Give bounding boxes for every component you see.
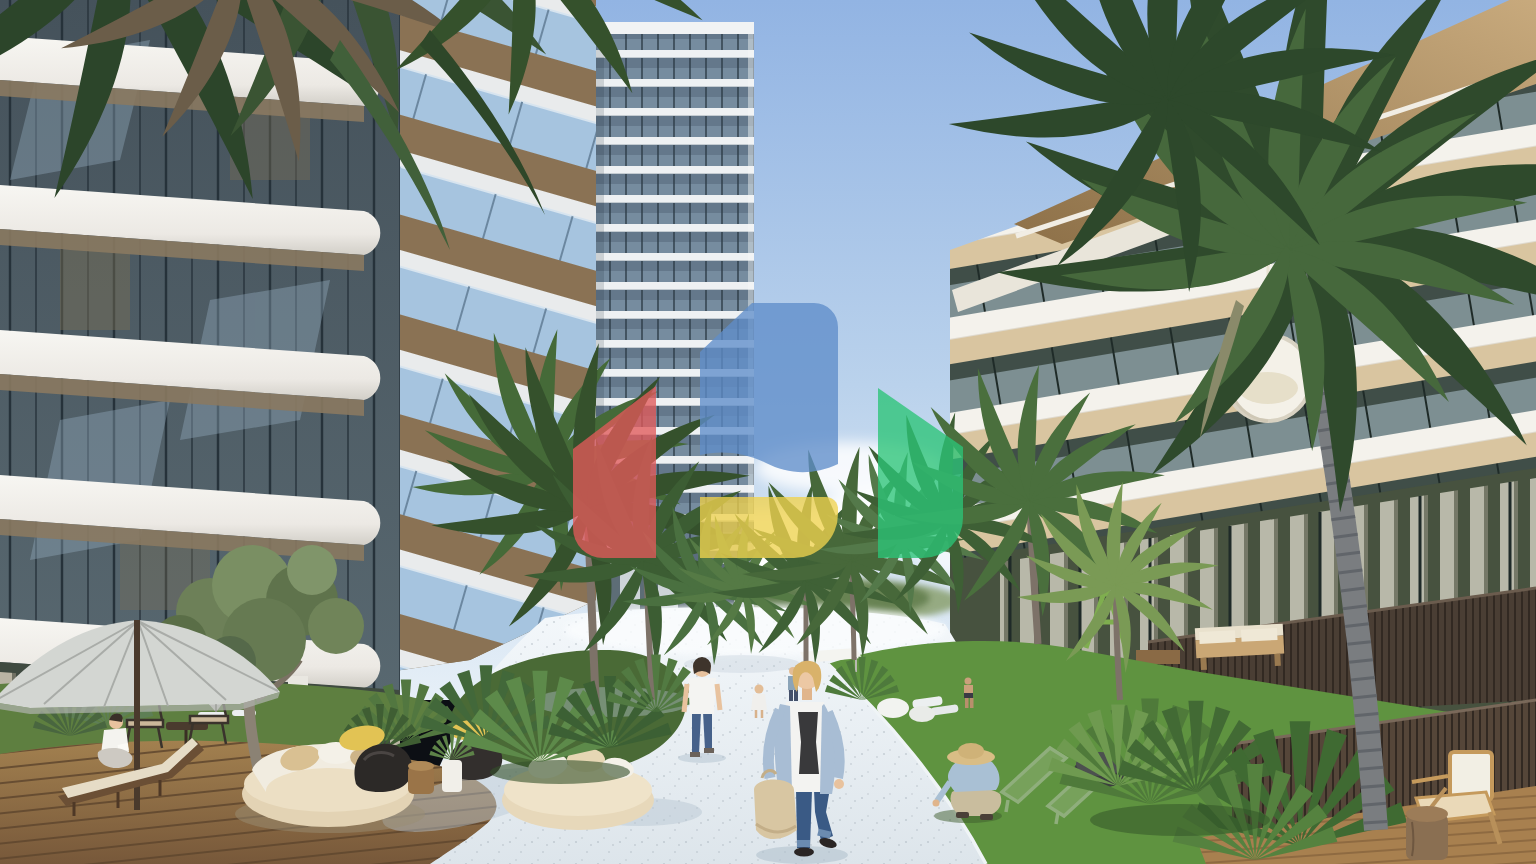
log-side-table <box>408 761 434 794</box>
white-garden-pouf <box>909 706 935 722</box>
scene-canvas <box>0 0 1536 864</box>
white-garden-pouf <box>877 698 909 718</box>
log-stool <box>1406 806 1448 860</box>
logo-yellow-shape <box>700 497 838 558</box>
tower-parapet <box>594 22 754 34</box>
rendered-photo <box>0 0 1536 864</box>
